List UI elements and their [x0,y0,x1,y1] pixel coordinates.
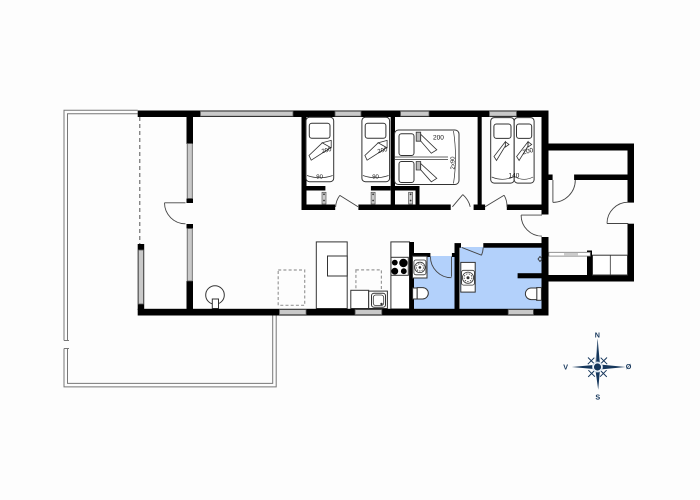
svg-text:140: 140 [509,173,520,180]
svg-text:N: N [595,331,600,340]
svg-text:2x90: 2x90 [449,156,456,170]
svg-text:200: 200 [433,134,444,141]
svg-text:90: 90 [316,173,323,180]
svg-text:S: S [595,393,600,402]
svg-text:90: 90 [372,173,379,180]
svg-text:V: V [563,363,568,372]
svg-text:Ø: Ø [626,362,632,371]
